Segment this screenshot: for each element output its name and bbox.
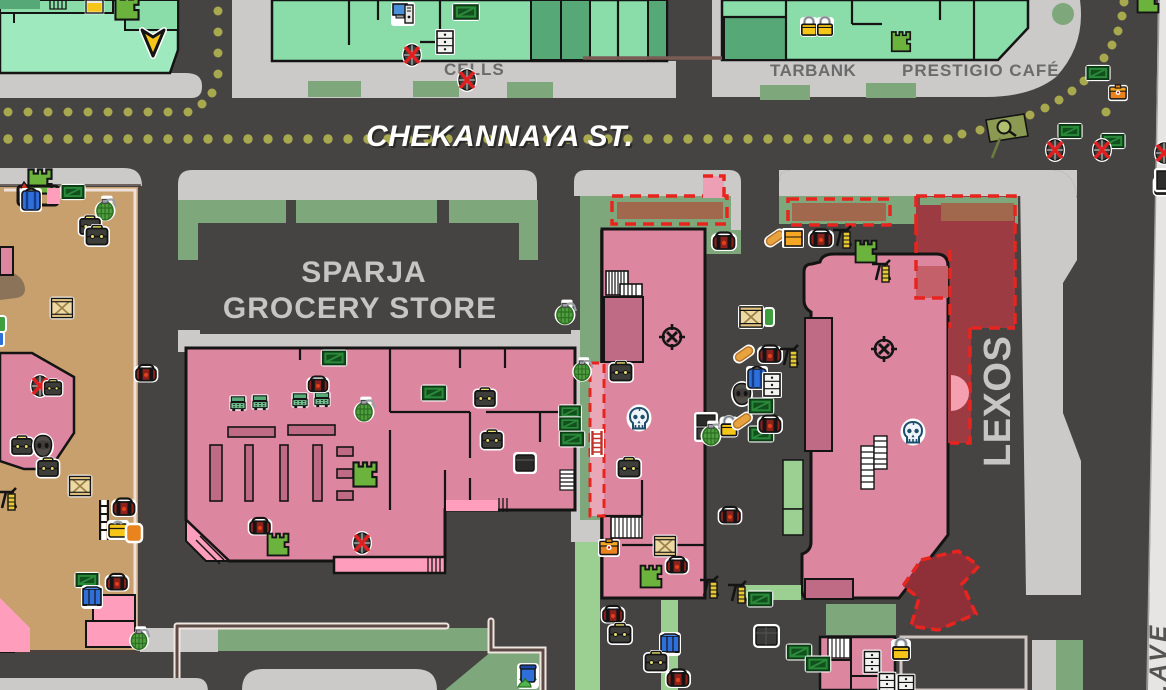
svg-text:TARBANK: TARBANK xyxy=(770,61,857,80)
svg-text:GROCERY STORE: GROCERY STORE xyxy=(223,292,497,325)
svg-text:LAVE: LAVE xyxy=(1145,622,1166,690)
svg-text:SPARJA: SPARJA xyxy=(301,256,426,289)
svg-text:CHEKANNAYA ST.: CHEKANNAYA ST. xyxy=(366,120,634,153)
svg-text:PRESTIGIO CAFÉ: PRESTIGIO CAFÉ xyxy=(902,61,1060,80)
svg-text:LEXOS: LEXOS xyxy=(977,336,1019,467)
